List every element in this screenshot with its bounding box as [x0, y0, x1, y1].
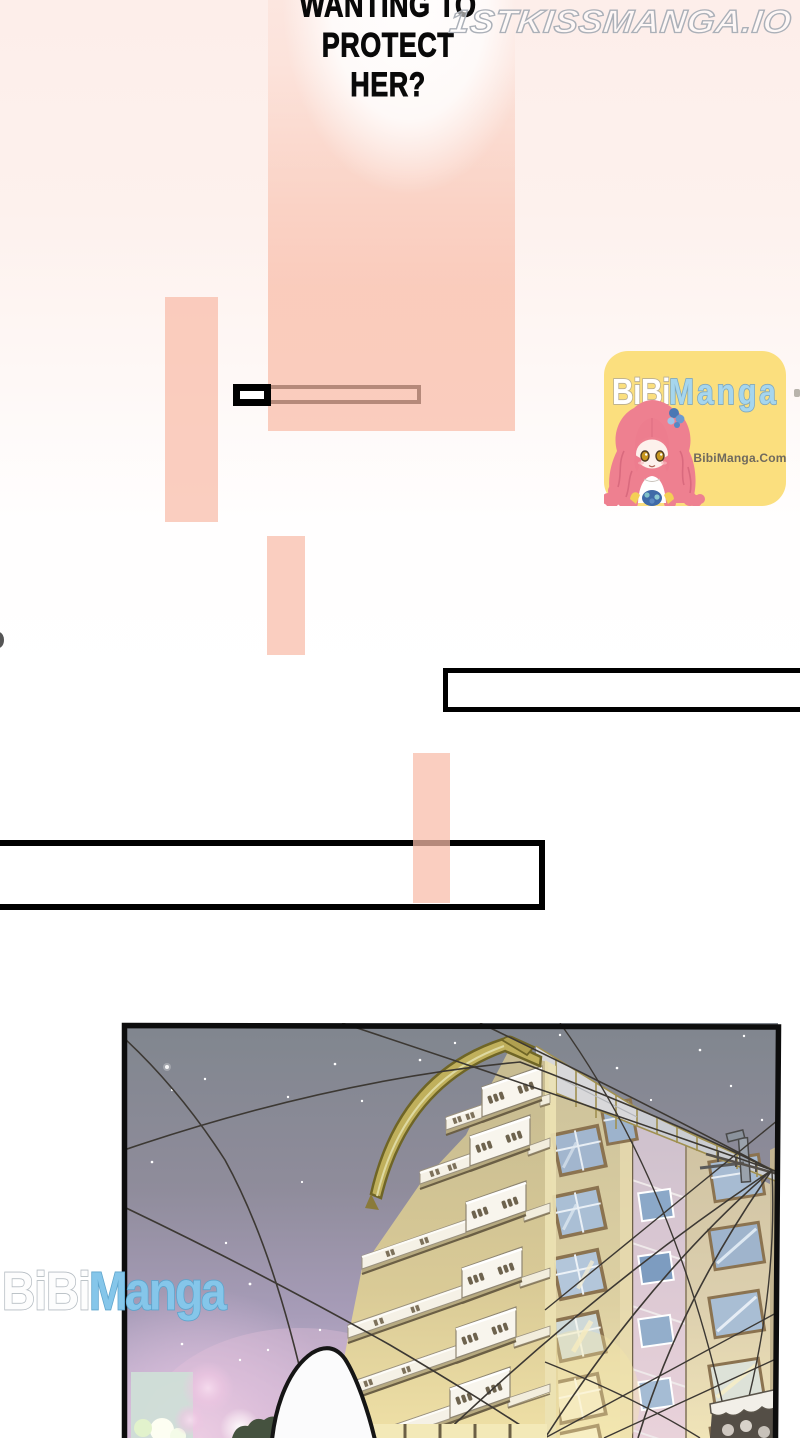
svg-text:BiBi: BiBi [2, 1262, 90, 1322]
svg-text:BibiManga.Com: BibiManga.Com [693, 451, 786, 465]
svg-text:Manga: Manga [89, 1262, 228, 1322]
svg-text:Manga: Manga [669, 372, 779, 412]
